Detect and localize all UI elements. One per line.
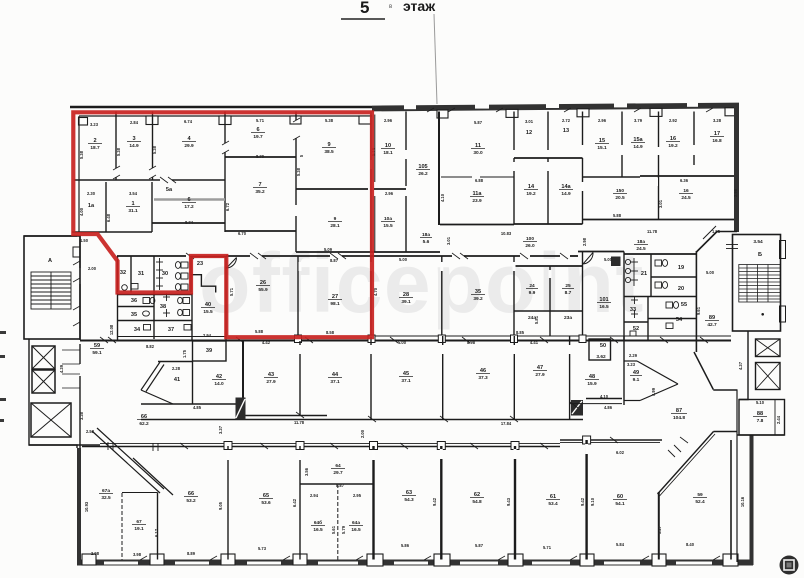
svg-text:7: 7 bbox=[258, 182, 261, 188]
svg-text:1.50: 1.50 bbox=[80, 238, 89, 243]
svg-text:47: 47 bbox=[537, 365, 543, 371]
svg-text:4.37: 4.37 bbox=[738, 361, 743, 370]
svg-text:16.5: 16.5 bbox=[351, 527, 361, 533]
svg-text:11.78: 11.78 bbox=[294, 420, 305, 425]
svg-text:9.61: 9.61 bbox=[696, 306, 701, 315]
svg-text:4.86: 4.86 bbox=[604, 405, 613, 410]
svg-text:19.7: 19.7 bbox=[253, 134, 263, 140]
svg-text:55.9: 55.9 bbox=[258, 287, 268, 293]
svg-text:54.1: 54.1 bbox=[615, 501, 625, 507]
svg-text:8.87: 8.87 bbox=[336, 483, 345, 488]
svg-text:37.1: 37.1 bbox=[401, 378, 411, 384]
svg-text:9.1: 9.1 bbox=[633, 377, 640, 383]
svg-text:1: 1 bbox=[131, 201, 134, 207]
svg-text:3.54: 3.54 bbox=[753, 239, 763, 245]
svg-text:4.99: 4.99 bbox=[651, 387, 656, 396]
svg-text:2.94: 2.94 bbox=[310, 493, 319, 498]
svg-text:32: 32 bbox=[120, 270, 126, 276]
svg-text:37.3: 37.3 bbox=[478, 375, 488, 381]
svg-text:27.9: 27.9 bbox=[266, 379, 276, 385]
svg-text:52.4: 52.4 bbox=[695, 499, 705, 505]
svg-text:46: 46 bbox=[480, 368, 486, 374]
svg-text:32.5: 32.5 bbox=[101, 495, 111, 501]
svg-text:31: 31 bbox=[138, 271, 144, 277]
svg-text:5.88: 5.88 bbox=[613, 213, 622, 218]
svg-text:2.29: 2.29 bbox=[629, 353, 638, 358]
svg-text:39: 39 bbox=[206, 348, 212, 354]
svg-text:101: 101 bbox=[599, 297, 608, 303]
svg-text:8.85: 8.85 bbox=[516, 330, 525, 335]
svg-text:10: 10 bbox=[385, 143, 391, 149]
svg-text:6: 6 bbox=[187, 197, 190, 203]
svg-text:67: 67 bbox=[136, 519, 142, 525]
svg-text:6.72: 6.72 bbox=[225, 202, 230, 211]
svg-text:18a: 18a bbox=[422, 232, 430, 238]
svg-text:19: 19 bbox=[678, 265, 684, 271]
svg-text:5.00: 5.00 bbox=[399, 257, 408, 262]
svg-text:3.23: 3.23 bbox=[627, 362, 636, 367]
svg-text:3.79: 3.79 bbox=[634, 118, 643, 123]
svg-text:2.00: 2.00 bbox=[360, 429, 365, 438]
svg-text:5a: 5a bbox=[166, 187, 173, 193]
svg-text:41: 41 bbox=[174, 377, 180, 383]
svg-text:2.95: 2.95 bbox=[353, 493, 362, 498]
svg-text:23: 23 bbox=[197, 261, 203, 267]
svg-text:10.93: 10.93 bbox=[84, 501, 89, 512]
svg-text:62.2: 62.2 bbox=[139, 421, 149, 427]
svg-text:16.5: 16.5 bbox=[313, 527, 323, 533]
svg-text:9.42: 9.42 bbox=[580, 497, 585, 506]
svg-text:5.10: 5.10 bbox=[756, 400, 765, 405]
svg-text:53.6: 53.6 bbox=[261, 500, 271, 506]
svg-text:16: 16 bbox=[670, 136, 676, 142]
svg-text:2.98: 2.98 bbox=[91, 551, 100, 556]
svg-text:2.44: 2.44 bbox=[776, 415, 781, 424]
svg-text:6.70: 6.70 bbox=[238, 231, 247, 236]
svg-text:17.84: 17.84 bbox=[501, 421, 512, 426]
svg-text:7.8: 7.8 bbox=[757, 418, 764, 424]
svg-text:65: 65 bbox=[263, 493, 269, 499]
svg-text:62: 62 bbox=[474, 492, 480, 498]
svg-text:55: 55 bbox=[681, 302, 687, 308]
svg-text:23.9: 23.9 bbox=[472, 198, 482, 204]
svg-text:5.87: 5.87 bbox=[475, 543, 484, 548]
svg-text:Б: Б bbox=[758, 252, 762, 258]
svg-text:8.98: 8.98 bbox=[467, 340, 476, 345]
svg-text:1.55: 1.55 bbox=[712, 229, 721, 234]
svg-text:64a: 64a bbox=[352, 520, 360, 526]
svg-text:5.81: 5.81 bbox=[534, 315, 539, 324]
svg-text:9.05: 9.05 bbox=[218, 501, 223, 510]
svg-text:15: 15 bbox=[599, 138, 605, 144]
svg-text:2.96: 2.96 bbox=[385, 191, 394, 196]
svg-text:20: 20 bbox=[678, 286, 684, 292]
svg-text:4.39: 4.39 bbox=[59, 364, 64, 373]
svg-text:2.72: 2.72 bbox=[562, 118, 571, 123]
svg-text:6.02: 6.02 bbox=[616, 450, 625, 455]
svg-text:38: 38 bbox=[160, 304, 166, 310]
svg-text:2.96: 2.96 bbox=[598, 118, 607, 123]
svg-text:26: 26 bbox=[260, 280, 266, 286]
svg-text:98.1: 98.1 bbox=[330, 301, 340, 307]
svg-text:29.9: 29.9 bbox=[184, 143, 194, 149]
svg-text:54: 54 bbox=[676, 317, 683, 323]
svg-text:3.54: 3.54 bbox=[129, 191, 138, 196]
svg-text:67a: 67a bbox=[102, 488, 110, 494]
svg-text:88: 88 bbox=[757, 411, 763, 417]
svg-text:59: 59 bbox=[94, 343, 100, 349]
svg-text:26.2: 26.2 bbox=[418, 171, 428, 177]
svg-text:8.70: 8.70 bbox=[256, 154, 265, 159]
svg-text:этаж: этаж bbox=[403, 0, 436, 14]
svg-text:5.86: 5.86 bbox=[401, 543, 410, 548]
svg-text:3.37: 3.37 bbox=[218, 425, 223, 434]
svg-text:5.38: 5.38 bbox=[296, 167, 301, 176]
svg-text:10a: 10a bbox=[384, 216, 392, 222]
svg-text:37.1: 37.1 bbox=[330, 379, 340, 385]
svg-text:2: 2 bbox=[93, 138, 96, 144]
svg-text:5.00: 5.00 bbox=[398, 340, 407, 345]
svg-text:19.1: 19.1 bbox=[134, 526, 144, 532]
svg-text:5.87: 5.87 bbox=[474, 120, 483, 125]
svg-text:9.9: 9.9 bbox=[529, 290, 536, 296]
svg-text:34: 34 bbox=[134, 327, 141, 333]
svg-text:3.38: 3.38 bbox=[79, 411, 84, 420]
svg-text:64: 64 bbox=[335, 463, 341, 469]
svg-text:30.0: 30.0 bbox=[473, 150, 483, 156]
svg-text:53.4: 53.4 bbox=[548, 501, 558, 507]
svg-text:19.2: 19.2 bbox=[526, 191, 536, 197]
svg-text:44: 44 bbox=[332, 372, 339, 378]
svg-text:11.78: 11.78 bbox=[647, 229, 658, 234]
svg-text:5.79: 5.79 bbox=[341, 525, 346, 534]
svg-text:5.27: 5.27 bbox=[657, 525, 662, 534]
svg-text:27.9: 27.9 bbox=[535, 372, 545, 378]
svg-text:5.00: 5.00 bbox=[706, 270, 715, 275]
svg-text:5.84: 5.84 bbox=[616, 542, 625, 547]
svg-text:21: 21 bbox=[641, 271, 647, 277]
svg-text:45: 45 bbox=[403, 371, 409, 377]
svg-text:33: 33 bbox=[630, 307, 636, 313]
svg-text:15a: 15a bbox=[633, 137, 643, 143]
svg-text:19.2: 19.2 bbox=[668, 143, 678, 149]
svg-text:8.7: 8.7 bbox=[565, 290, 572, 296]
svg-text:6.88: 6.88 bbox=[475, 178, 484, 183]
svg-text:9: 9 bbox=[334, 216, 337, 222]
svg-text:4.10: 4.10 bbox=[440, 193, 445, 202]
svg-text:6.17: 6.17 bbox=[154, 528, 159, 537]
svg-text:10.16: 10.16 bbox=[740, 496, 745, 507]
svg-text:1.75: 1.75 bbox=[182, 349, 187, 358]
svg-text:43: 43 bbox=[268, 372, 274, 378]
svg-text:2.92: 2.92 bbox=[669, 118, 678, 123]
svg-text:3.23: 3.23 bbox=[90, 122, 99, 127]
svg-text:15.5: 15.5 bbox=[383, 223, 393, 229]
svg-text:15.5: 15.5 bbox=[203, 309, 213, 315]
svg-text:36: 36 bbox=[131, 298, 137, 304]
svg-text:53.2: 53.2 bbox=[186, 498, 196, 504]
svg-text:9: 9 bbox=[327, 142, 330, 148]
svg-text:3.62: 3.62 bbox=[596, 354, 606, 360]
svg-text:14.0: 14.0 bbox=[214, 381, 224, 387]
svg-text:6.42: 6.42 bbox=[292, 498, 297, 507]
svg-text:6.74: 6.74 bbox=[184, 119, 193, 124]
svg-text:8.82: 8.82 bbox=[146, 344, 155, 349]
svg-text:24: 24 bbox=[529, 283, 535, 289]
svg-text:14.9: 14.9 bbox=[129, 143, 139, 149]
svg-text:5.38: 5.38 bbox=[79, 150, 84, 159]
svg-text:15.1: 15.1 bbox=[597, 145, 607, 151]
svg-text:3.01: 3.01 bbox=[658, 199, 663, 208]
svg-text:2.00: 2.00 bbox=[88, 266, 97, 271]
svg-text:6: 6 bbox=[256, 127, 259, 133]
svg-text:29.7: 29.7 bbox=[333, 470, 343, 476]
svg-text:4.41: 4.41 bbox=[530, 340, 539, 345]
svg-text:63: 63 bbox=[406, 490, 412, 496]
svg-text:4.42: 4.42 bbox=[262, 340, 271, 345]
svg-text:5.09: 5.09 bbox=[324, 247, 333, 252]
svg-text:4.00: 4.00 bbox=[79, 207, 84, 216]
svg-text:4.85: 4.85 bbox=[193, 405, 202, 410]
svg-text:3.01: 3.01 bbox=[525, 119, 534, 124]
svg-text:5.38: 5.38 bbox=[152, 145, 157, 154]
svg-text:8.74: 8.74 bbox=[185, 220, 194, 225]
svg-text:5: 5 bbox=[360, 0, 369, 17]
svg-text:16.8: 16.8 bbox=[712, 138, 722, 144]
svg-text:18.1: 18.1 bbox=[383, 150, 393, 156]
svg-text:8.89: 8.89 bbox=[187, 551, 196, 556]
svg-text:10.83: 10.83 bbox=[501, 231, 512, 236]
svg-text:25: 25 bbox=[565, 283, 571, 289]
svg-text:30: 30 bbox=[162, 271, 168, 277]
svg-text:3.98: 3.98 bbox=[133, 552, 142, 557]
svg-text:5.88: 5.88 bbox=[255, 329, 264, 334]
svg-text:42: 42 bbox=[216, 374, 222, 380]
svg-text:14a: 14a bbox=[561, 184, 571, 190]
svg-text:26.0: 26.0 bbox=[525, 243, 535, 249]
svg-text:12: 12 bbox=[526, 130, 532, 136]
svg-text:3: 3 bbox=[132, 136, 135, 142]
svg-text:16.5: 16.5 bbox=[599, 304, 609, 310]
svg-text:4.10: 4.10 bbox=[600, 394, 609, 399]
svg-text:87: 87 bbox=[676, 408, 682, 414]
svg-text:37: 37 bbox=[168, 327, 174, 333]
svg-text:15.9: 15.9 bbox=[587, 381, 597, 387]
svg-text:14: 14 bbox=[528, 184, 535, 190]
svg-text:61: 61 bbox=[550, 494, 556, 500]
svg-text:66: 66 bbox=[141, 414, 147, 420]
svg-text:28: 28 bbox=[403, 292, 409, 298]
svg-text:64б: 64б bbox=[314, 519, 322, 526]
svg-text:150: 150 bbox=[616, 188, 624, 194]
svg-text:50: 50 bbox=[600, 343, 606, 349]
svg-text:42.7: 42.7 bbox=[707, 322, 717, 328]
svg-text:13: 13 bbox=[563, 128, 569, 134]
svg-text:60: 60 bbox=[617, 494, 623, 500]
svg-text:в: в bbox=[389, 4, 392, 10]
svg-text:2.84: 2.84 bbox=[130, 120, 139, 125]
svg-text:49: 49 bbox=[633, 370, 639, 376]
svg-text:5.71: 5.71 bbox=[543, 545, 552, 550]
svg-text:12.08: 12.08 bbox=[109, 324, 114, 335]
svg-text:5.61: 5.61 bbox=[331, 525, 336, 534]
svg-text:11a: 11a bbox=[472, 191, 482, 197]
svg-text:14.9: 14.9 bbox=[633, 144, 643, 150]
svg-text:14.9: 14.9 bbox=[561, 191, 571, 197]
svg-text:54.3: 54.3 bbox=[404, 497, 414, 503]
svg-text:35: 35 bbox=[131, 312, 137, 318]
svg-text:2.96: 2.96 bbox=[384, 118, 393, 123]
svg-text:6.48: 6.48 bbox=[106, 213, 111, 222]
svg-text:100: 100 bbox=[526, 236, 534, 242]
svg-text:2.94: 2.94 bbox=[203, 333, 212, 338]
svg-text:24.5: 24.5 bbox=[681, 195, 691, 201]
svg-text:8.40: 8.40 bbox=[686, 542, 695, 547]
svg-text:9.10: 9.10 bbox=[590, 497, 595, 506]
svg-text:9.43: 9.43 bbox=[506, 497, 511, 506]
svg-text:105: 105 bbox=[418, 164, 427, 170]
svg-text:9.42: 9.42 bbox=[432, 497, 437, 506]
svg-text:1a: 1a bbox=[88, 203, 95, 209]
svg-text:28.1: 28.1 bbox=[330, 223, 340, 229]
svg-text:35: 35 bbox=[475, 289, 481, 295]
svg-text:5.73: 5.73 bbox=[258, 546, 267, 551]
svg-text:27: 27 bbox=[332, 294, 338, 300]
svg-text:5.71: 5.71 bbox=[229, 287, 234, 296]
svg-text:2.28: 2.28 bbox=[172, 366, 181, 371]
svg-text:59: 59 bbox=[697, 492, 703, 498]
svg-text:18.7: 18.7 bbox=[90, 145, 100, 151]
svg-text:66: 66 bbox=[188, 491, 194, 497]
svg-text:5.00: 5.00 bbox=[604, 257, 613, 262]
svg-text:2.96: 2.96 bbox=[733, 188, 738, 197]
svg-text:8.58: 8.58 bbox=[326, 330, 335, 335]
svg-text:24.5: 24.5 bbox=[636, 246, 646, 252]
svg-text:2.98: 2.98 bbox=[582, 237, 587, 246]
svg-text:3.01: 3.01 bbox=[446, 236, 451, 245]
svg-text:3.28: 3.28 bbox=[713, 118, 722, 123]
svg-text:48: 48 bbox=[589, 374, 595, 380]
svg-text:5.6: 5.6 bbox=[423, 239, 430, 245]
svg-text:18a: 18a bbox=[637, 239, 645, 245]
svg-text:54.8: 54.8 bbox=[472, 499, 482, 505]
svg-text:104.8: 104.8 bbox=[673, 415, 685, 421]
svg-text:5.71: 5.71 bbox=[256, 118, 265, 123]
svg-text:2.30: 2.30 bbox=[87, 191, 96, 196]
svg-text:39.2: 39.2 bbox=[473, 296, 483, 302]
svg-text:3.56: 3.56 bbox=[304, 467, 309, 476]
svg-text:17: 17 bbox=[714, 131, 720, 137]
svg-text:39.1: 39.1 bbox=[401, 299, 411, 305]
svg-text:5.38: 5.38 bbox=[325, 118, 334, 123]
svg-text:17.2: 17.2 bbox=[184, 204, 194, 210]
svg-text:A: A bbox=[48, 258, 52, 264]
svg-text:5.38: 5.38 bbox=[116, 147, 121, 156]
svg-text:31.1: 31.1 bbox=[128, 208, 138, 214]
svg-text:16: 16 bbox=[683, 188, 689, 194]
svg-text:35.2: 35.2 bbox=[255, 189, 265, 195]
svg-text:23a: 23a bbox=[564, 315, 572, 321]
svg-text:38.5: 38.5 bbox=[324, 149, 334, 155]
svg-text:59.1: 59.1 bbox=[92, 350, 102, 356]
svg-text:11: 11 bbox=[475, 143, 481, 149]
svg-text:40: 40 bbox=[205, 302, 211, 308]
svg-text:6.36: 6.36 bbox=[680, 178, 689, 183]
svg-text:89: 89 bbox=[709, 315, 715, 321]
svg-text:20.5: 20.5 bbox=[615, 195, 625, 201]
svg-text:2.53: 2.53 bbox=[86, 429, 95, 434]
